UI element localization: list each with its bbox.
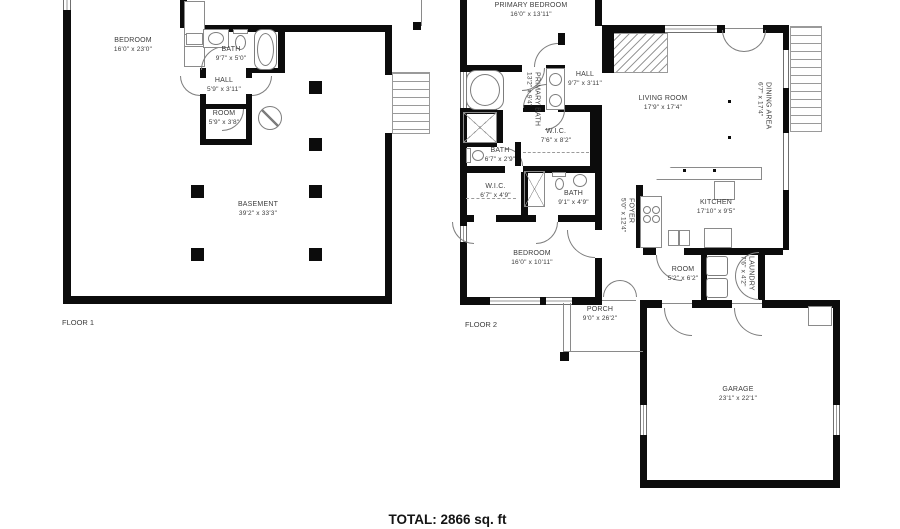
floor2-tag: FLOOR 2 [465, 320, 497, 329]
room-label-bath-lower: BATH 9'1" x 4'9" [546, 190, 601, 207]
wall [565, 105, 597, 112]
stove-burner-icon [643, 215, 651, 223]
room-dims: 9'7" x 3'11" [560, 80, 610, 88]
window [783, 50, 789, 88]
room-label-primary-bedroom: PRIMARY BEDROOM 16'0" x 13'11" [471, 2, 591, 19]
room-label-basement: BASEMENT 39'2" x 33'3" [198, 201, 318, 218]
wall [558, 33, 565, 45]
room-dims: 5'9" x 3'11" [190, 86, 258, 94]
support-post [191, 248, 204, 261]
door-arc [452, 222, 474, 244]
room-dims: 39'2" x 33'3" [198, 210, 318, 218]
shower-icon [524, 171, 545, 207]
marker-dot [713, 169, 716, 172]
wall [763, 25, 784, 33]
wall [63, 296, 392, 304]
door-arc [536, 222, 558, 244]
total-area-label: TOTAL: 2866 sq. ft [340, 512, 555, 527]
door-sill [662, 303, 692, 304]
door-arc [603, 280, 620, 297]
room-dims: 5'2" x 6'2" [655, 275, 711, 283]
room-dims: 13'2" x 9'4" [524, 72, 532, 132]
room-dims: 6'7" x 17'4" [755, 82, 763, 142]
room-name: PRIMARY BATH [532, 72, 541, 132]
room-name: BEDROOM [83, 37, 183, 46]
stove-burner-icon [652, 206, 660, 214]
room-name: PORCH [570, 306, 630, 315]
wall [692, 300, 732, 308]
room-label-living-room: LIVING ROOM 17'9" x 17'4" [613, 95, 713, 112]
shower-icon [463, 112, 497, 143]
wall [783, 25, 789, 50]
floor-plan-canvas: BEDROOM 16'0" x 23'0" BATH 9'7" x 5'0" H… [0, 0, 900, 529]
room-dims: 23'1" x 22'1" [688, 395, 788, 403]
wall [496, 215, 536, 222]
room-name: ROOM [655, 266, 711, 275]
room-label-dining-area: DINING AREA 6'7" x 17'4" [755, 82, 773, 142]
window [783, 133, 789, 190]
room-dims: 9'1" x 4'9" [546, 199, 601, 207]
window [490, 297, 540, 305]
stove-burner-icon [652, 215, 660, 223]
wall [758, 255, 765, 300]
kitchen-sink-icon [668, 230, 679, 246]
room-label-hall-f1: HALL 5'9" x 3'11" [190, 77, 258, 94]
kitchen-peninsula [656, 167, 762, 180]
wall [602, 25, 665, 33]
window [665, 25, 717, 33]
room-name: HALL [190, 77, 258, 86]
room-name: BASEMENT [198, 201, 318, 210]
room-dims: 16'0" x 13'11" [471, 11, 591, 19]
door-arc [664, 308, 692, 336]
wall [595, 258, 602, 297]
window [63, 0, 71, 10]
wall [595, 105, 602, 230]
window [833, 405, 840, 435]
wall [783, 88, 789, 133]
room-name: PRIMARY BEDROOM [471, 2, 591, 11]
room-name: BATH [546, 190, 601, 199]
garage-closet [808, 306, 832, 326]
room-dims: 7'6" x 8'2" [521, 137, 591, 145]
wall-marker [413, 22, 421, 30]
room-dims: 9'7" x 5'0" [196, 55, 266, 63]
marker-dot [683, 169, 686, 172]
porch-edge [563, 351, 643, 352]
toilet-icon [555, 178, 564, 190]
front-door-arc [722, 30, 766, 52]
support-post [309, 248, 322, 261]
room-label-room-f1: ROOM 5'9" x 3'8" [190, 110, 258, 127]
wall [558, 215, 600, 222]
sink-icon [208, 32, 224, 45]
wall [200, 139, 252, 145]
wall [385, 133, 392, 296]
electrical-symbol-icon [258, 106, 282, 130]
room-dims: 17'10" x 9'5" [666, 208, 766, 216]
room-name: KITCHEN [666, 199, 766, 208]
room-label-room-f2: ROOM 5'2" x 6'2" [655, 266, 711, 283]
door-arc [620, 280, 637, 297]
room-label-kitchen: KITCHEN 17'10" x 9'5" [666, 199, 766, 216]
wall [460, 215, 474, 222]
wall [497, 110, 503, 143]
guide-line [421, 0, 422, 26]
room-name: GARAGE [688, 386, 788, 395]
staircase [392, 72, 430, 134]
cabinet-box [186, 33, 203, 45]
room-label-hall-f2: HALL 9'7" x 3'11" [560, 71, 610, 88]
wall [63, 10, 71, 296]
wall [640, 480, 840, 488]
door-arc [545, 110, 565, 130]
room-name: FOYER [626, 198, 635, 253]
bathtub-basin [470, 74, 500, 106]
room-name: DINING AREA [763, 82, 772, 142]
room-name: BATH [196, 46, 266, 55]
stove-burner-icon [643, 206, 651, 214]
closet-rod [523, 152, 589, 153]
room-name: ROOM [190, 110, 258, 119]
room-name: HALL [560, 71, 610, 80]
sink-icon [549, 94, 562, 107]
deck-stairs [790, 26, 822, 132]
door-arc [734, 308, 762, 336]
door-arc [534, 43, 558, 67]
door-sill [602, 300, 636, 301]
room-label-bath-f1: BATH 9'7" x 5'0" [196, 46, 266, 63]
wall [460, 166, 505, 173]
refrigerator [704, 228, 732, 248]
room-label-bedroom-f1: BEDROOM 16'0" x 23'0" [83, 37, 183, 54]
wall [385, 32, 392, 75]
room-name: BATH [475, 147, 525, 156]
sink-icon [573, 174, 587, 187]
room-label-wic-lower: W.I.C. 6'7" x 4'9" [468, 183, 523, 200]
wall [640, 308, 647, 480]
wall [643, 248, 656, 255]
toilet-tank [466, 148, 471, 163]
wall [783, 190, 789, 250]
room-label-porch: PORCH 9'0" x 26'2" [570, 306, 630, 323]
wall [762, 248, 783, 255]
room-dims: 16'0" x 23'0" [83, 46, 183, 54]
support-post [191, 185, 204, 198]
room-dims: 9'0" x 26'2" [570, 315, 630, 323]
floor1-tag: FLOOR 1 [62, 318, 94, 327]
room-label-foyer: FOYER 5'0" x 12'4" [618, 198, 636, 253]
support-post [309, 81, 322, 94]
room-dims: 16'0" x 10'11" [482, 259, 582, 267]
room-name: BEDROOM [482, 250, 582, 259]
wall [278, 32, 285, 73]
room-label-laundry: LAUNDRY 7'6" x 4'2" [738, 256, 756, 304]
room-dims: 6'7" x 2'9" [475, 156, 525, 164]
kitchen-island [714, 181, 735, 200]
door-sill [725, 28, 763, 29]
room-name: W.I.C. [521, 128, 591, 137]
wall [595, 0, 602, 26]
room-name: W.I.C. [468, 183, 523, 192]
support-post [309, 138, 322, 151]
toilet-tank [552, 172, 566, 177]
room-name: LIVING ROOM [613, 95, 713, 104]
room-label-bath-small: BATH 6'7" x 2'9" [475, 147, 525, 164]
room-dims: 5'0" x 12'4" [618, 198, 626, 253]
room-name: LAUNDRY [746, 256, 755, 304]
wall [640, 300, 662, 308]
room-label-garage: GARAGE 23'1" x 22'1" [688, 386, 788, 403]
wall [833, 300, 840, 480]
support-post [309, 185, 322, 198]
counter [640, 196, 662, 248]
room-dims: 7'6" x 4'2" [738, 256, 746, 304]
marker-dot [728, 136, 731, 139]
room-label-bedroom-f2: BEDROOM 16'0" x 10'11" [482, 250, 582, 267]
room-dims: 17'9" x 17'4" [613, 104, 713, 112]
stair-wall [602, 33, 614, 73]
marker-dot [728, 100, 731, 103]
room-dims: 5'9" x 3'8" [190, 119, 258, 127]
room-label-wic-upper: W.I.C. 7'6" x 8'2" [521, 128, 591, 145]
porch-post [560, 352, 569, 361]
toilet-tank [233, 29, 248, 34]
window [640, 405, 647, 435]
room-label-primary-bath: PRIMARY BATH 13'2" x 9'4" [524, 72, 542, 132]
kitchen-sink-icon [679, 230, 690, 246]
room-dims: 6'7" x 4'9" [468, 192, 523, 200]
